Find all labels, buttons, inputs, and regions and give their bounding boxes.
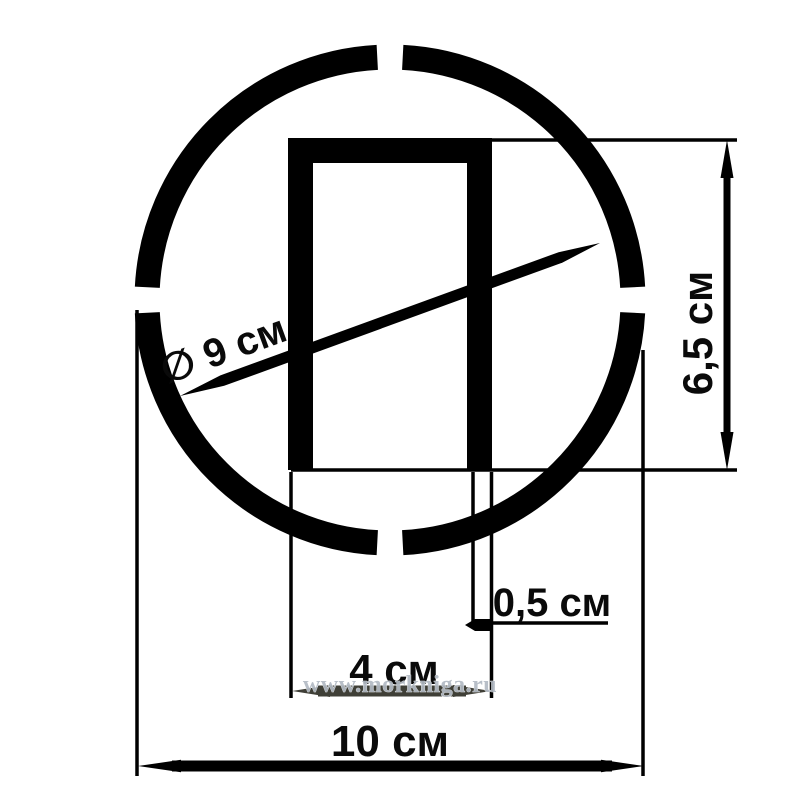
height-dimension (721, 140, 734, 470)
slot-height-label: 6,5 см (674, 271, 721, 395)
overall-width-arrowhead-right (601, 760, 644, 772)
stroke-thickness-label: 0,5 см (493, 581, 612, 625)
stencil-diagram: ∅ 9 см 6,5 см 0,5 см 4 см 10 см www.mork… (0, 0, 800, 800)
thickness-indicator-arrow (465, 619, 492, 631)
overall-width-arrowhead-left (138, 760, 181, 772)
height-arrowhead-down (721, 432, 734, 470)
height-arrowhead-up (721, 140, 734, 178)
stencil-slot-shape (288, 138, 492, 470)
ring-arc-bottom-right (403, 313, 633, 543)
ring-arc-top-right (403, 57, 633, 287)
ring-arc-top-left (147, 57, 377, 287)
drawing-canvas: ∅ 9 см 6,5 см 0,5 см 4 см 10 см www.mork… (0, 0, 800, 800)
overall-width-label: 10 см (331, 717, 449, 766)
watermark-text: www.morkniga.ru (303, 672, 497, 698)
